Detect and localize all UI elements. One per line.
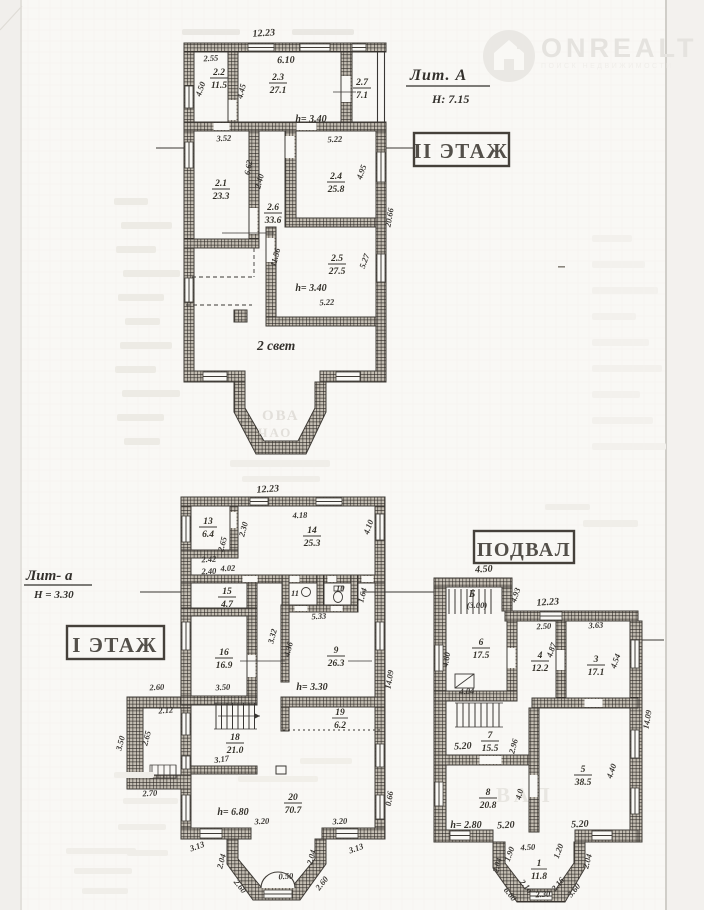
svg-text:25.8: 25.8 <box>327 185 345 195</box>
svg-text:6.2: 6.2 <box>334 721 346 731</box>
svg-text:2.50: 2.50 <box>535 621 552 632</box>
svg-text:2.42: 2.42 <box>200 554 217 565</box>
svg-text:6: 6 <box>479 638 484 648</box>
svg-text:5.20: 5.20 <box>497 820 515 832</box>
svg-text:11: 11 <box>291 588 299 598</box>
svg-text:h= 3.40: h= 3.40 <box>295 283 326 294</box>
svg-text:16.9: 16.9 <box>216 661 233 671</box>
svg-text:27.1: 27.1 <box>269 86 287 96</box>
svg-text:4.50: 4.50 <box>474 564 493 576</box>
svg-text:2.70: 2.70 <box>141 788 158 799</box>
svg-text:33.6: 33.6 <box>264 216 282 226</box>
svg-text:2.3: 2.3 <box>271 73 284 83</box>
svg-text:3.20: 3.20 <box>253 816 270 827</box>
svg-text:12.2: 12.2 <box>532 664 549 674</box>
svg-text:5.22: 5.22 <box>319 297 335 308</box>
svg-text:12.23: 12.23 <box>256 483 279 496</box>
svg-text:ПОИСК НЕДВИЖИМОСТИ: ПОИСК НЕДВИЖИМОСТИ <box>541 63 674 70</box>
svg-text:11.5: 11.5 <box>211 81 227 91</box>
svg-text:4.02: 4.02 <box>219 563 236 574</box>
svg-text:3.20: 3.20 <box>331 816 348 827</box>
svg-text:Лит- а: Лит- а <box>25 568 73 584</box>
svg-text:70.7: 70.7 <box>285 806 303 816</box>
svg-text:4.04: 4.04 <box>458 686 474 697</box>
svg-text:0.50: 0.50 <box>278 871 294 882</box>
svg-text:38.5: 38.5 <box>574 778 592 788</box>
svg-text:3: 3 <box>593 655 599 665</box>
svg-text:3.63: 3.63 <box>587 620 604 631</box>
svg-text:3.52: 3.52 <box>215 133 232 144</box>
svg-text:1: 1 <box>537 859 542 869</box>
svg-text:2.7: 2.7 <box>355 78 369 88</box>
svg-text:2.6: 2.6 <box>266 203 279 213</box>
svg-text:h= 3.40: h= 3.40 <box>295 114 326 125</box>
svg-text:16: 16 <box>219 648 229 658</box>
svg-text:14: 14 <box>307 526 317 536</box>
svg-text:(3.00): (3.00) <box>467 600 488 610</box>
svg-text:10: 10 <box>336 583 345 593</box>
svg-text:17.1: 17.1 <box>588 668 605 678</box>
svg-text:6.10: 6.10 <box>277 55 295 67</box>
svg-text:ОВА: ОВА <box>262 408 300 424</box>
svg-text:17.5: 17.5 <box>473 651 490 661</box>
svg-text:5.33: 5.33 <box>311 611 327 622</box>
svg-text:15.5: 15.5 <box>482 744 499 754</box>
svg-text:Н = 3.30: Н = 3.30 <box>33 589 74 601</box>
svg-text:5.22: 5.22 <box>327 134 343 145</box>
svg-text:20: 20 <box>287 793 298 803</box>
svg-text:12.23: 12.23 <box>536 596 559 609</box>
svg-text:20.8: 20.8 <box>479 801 497 811</box>
svg-text:2.2: 2.2 <box>212 68 225 78</box>
svg-text:15: 15 <box>222 587 232 597</box>
svg-text:27.5: 27.5 <box>328 267 346 277</box>
svg-text:ВАЛ: ВАЛ <box>496 783 555 807</box>
svg-text:7.1: 7.1 <box>356 91 368 101</box>
svg-text:h= 6.80: h= 6.80 <box>217 807 248 818</box>
svg-text:ЧАО: ЧАО <box>258 425 292 440</box>
svg-text:23.3: 23.3 <box>212 192 230 202</box>
svg-text:Б: Б <box>468 589 476 600</box>
svg-text:2 свет: 2 свет <box>256 338 295 353</box>
svg-text:9: 9 <box>334 646 339 656</box>
svg-text:5.20: 5.20 <box>571 819 589 831</box>
svg-text:II ЭТАЖ: II ЭТАЖ <box>413 139 508 163</box>
svg-text:8: 8 <box>486 788 491 798</box>
svg-text:4.50: 4.50 <box>519 842 536 853</box>
svg-text:6.4: 6.4 <box>202 530 214 540</box>
svg-text:2.40: 2.40 <box>200 566 217 577</box>
svg-text:2.12: 2.12 <box>157 704 174 715</box>
svg-text:5.20: 5.20 <box>454 741 472 753</box>
svg-text:Н: 7.15: Н: 7.15 <box>431 92 469 106</box>
svg-text:12.23: 12.23 <box>252 27 275 40</box>
svg-text:13: 13 <box>203 517 213 527</box>
svg-text:I ЭТАЖ: I ЭТАЖ <box>72 633 158 657</box>
svg-text:18: 18 <box>230 733 240 743</box>
svg-text:4: 4 <box>537 651 543 661</box>
svg-text:2.30: 2.30 <box>534 889 551 900</box>
svg-text:26.3: 26.3 <box>327 659 345 669</box>
svg-text:19: 19 <box>335 708 345 718</box>
svg-text:5: 5 <box>581 765 586 775</box>
svg-text:3.50: 3.50 <box>214 682 231 693</box>
svg-text:11.8: 11.8 <box>531 872 547 882</box>
svg-text:4.7: 4.7 <box>220 600 234 610</box>
svg-text:ONREALT: ONREALT <box>541 33 698 63</box>
svg-text:4.18: 4.18 <box>291 510 308 521</box>
svg-text:h= 3.30: h= 3.30 <box>296 682 327 693</box>
svg-text:h= 2.80: h= 2.80 <box>450 820 481 831</box>
svg-text:Лит. А: Лит. А <box>409 67 467 84</box>
svg-text:2.1: 2.1 <box>214 179 227 189</box>
svg-text:2.4: 2.4 <box>329 172 342 182</box>
svg-text:25.3: 25.3 <box>303 539 321 549</box>
svg-text:2.60: 2.60 <box>148 682 165 693</box>
svg-text:2.5: 2.5 <box>330 254 343 264</box>
svg-text:2.55: 2.55 <box>202 53 219 64</box>
svg-text:ПОДВАЛ: ПОДВАЛ <box>477 539 571 561</box>
